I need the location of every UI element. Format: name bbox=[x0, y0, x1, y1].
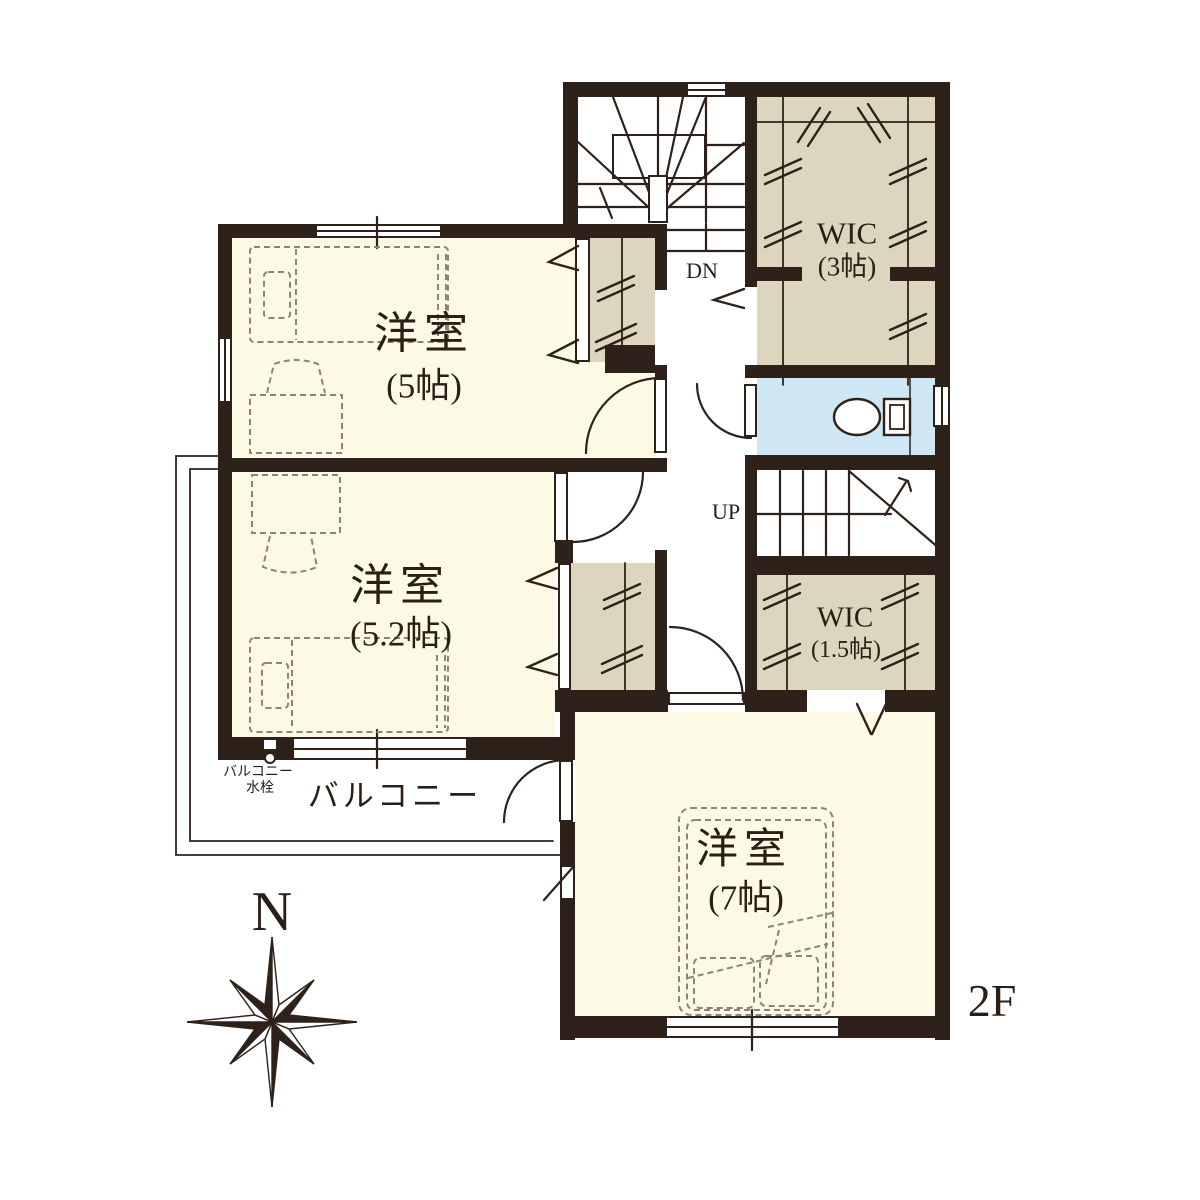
room-label-bedroom5: 洋室 bbox=[374, 312, 474, 356]
window bbox=[560, 865, 575, 900]
compass-north-label: N bbox=[252, 884, 292, 940]
wall bbox=[745, 97, 757, 287]
door-leaf bbox=[654, 378, 667, 453]
wall bbox=[218, 458, 667, 472]
window bbox=[218, 337, 232, 403]
room-size-wic15: (1.5帖) bbox=[811, 638, 881, 662]
wall bbox=[218, 238, 232, 337]
sliding-door bbox=[575, 238, 590, 362]
window bbox=[686, 82, 727, 97]
room-size-wic3: (3帖) bbox=[818, 254, 876, 281]
door-arc bbox=[697, 384, 751, 438]
wall bbox=[935, 427, 950, 1040]
floor-plan: 洋室 (5帖) 洋室 (5.2帖) 洋室 (7帖) WIC (3帖) WIC (… bbox=[0, 0, 1200, 1200]
wall bbox=[218, 737, 292, 760]
floor-label: 2F bbox=[968, 978, 1017, 1024]
window bbox=[933, 385, 950, 427]
door-arc bbox=[573, 472, 643, 542]
door-leaf bbox=[668, 692, 745, 705]
wall bbox=[745, 455, 950, 470]
window bbox=[292, 737, 468, 760]
wall bbox=[745, 365, 950, 378]
wall bbox=[757, 267, 802, 281]
wall bbox=[468, 737, 575, 760]
bedroom5-closet-area bbox=[590, 238, 655, 362]
room-label-bedroom52: 洋室 bbox=[350, 564, 450, 608]
wall bbox=[745, 690, 807, 712]
door-arc bbox=[504, 760, 566, 822]
wall bbox=[563, 82, 950, 97]
wall bbox=[935, 82, 950, 385]
wall bbox=[218, 224, 315, 238]
wall bbox=[555, 690, 668, 712]
room-toilet-area bbox=[757, 378, 935, 455]
bedroom52-closet-area bbox=[571, 563, 655, 690]
balcony-label: バルコニー bbox=[308, 781, 482, 812]
compass-rose-icon bbox=[187, 937, 357, 1107]
door-leaf bbox=[744, 384, 757, 437]
wall bbox=[655, 238, 667, 290]
wall bbox=[563, 97, 578, 238]
wall bbox=[745, 575, 757, 690]
window bbox=[315, 224, 442, 238]
wall bbox=[442, 224, 667, 238]
room-label-wic15: WIC bbox=[817, 604, 873, 633]
wall bbox=[605, 345, 655, 373]
stairs-down-label: DN bbox=[686, 260, 718, 282]
wall bbox=[885, 690, 950, 712]
stairs-up-icon bbox=[757, 471, 947, 555]
room-size-bedroom5: (5帖) bbox=[386, 369, 462, 404]
wall bbox=[218, 403, 232, 760]
door-leaf bbox=[554, 472, 568, 542]
room-label-bedroom7: 洋室 bbox=[696, 829, 792, 871]
balcony-faucet-label-line2: 水栓 bbox=[246, 782, 274, 796]
wall bbox=[560, 1016, 665, 1038]
door-leaf bbox=[559, 760, 573, 822]
wall bbox=[745, 470, 757, 556]
door-arc bbox=[670, 627, 743, 700]
room-size-bedroom7: (7帖) bbox=[708, 881, 784, 916]
stairs-up-label: UP bbox=[712, 501, 740, 523]
wall bbox=[560, 822, 575, 865]
window bbox=[665, 1016, 840, 1038]
room-label-wic3: WIC bbox=[817, 218, 877, 249]
wall bbox=[555, 540, 573, 563]
room-size-bedroom52: (5.2帖) bbox=[350, 617, 452, 652]
wall bbox=[745, 556, 950, 575]
wall bbox=[655, 550, 667, 690]
sliding-door bbox=[558, 563, 571, 690]
balcony-faucet-label-line1: バルコニー bbox=[223, 766, 293, 780]
wall bbox=[655, 365, 667, 378]
wall bbox=[840, 1016, 950, 1038]
wall bbox=[890, 267, 935, 281]
